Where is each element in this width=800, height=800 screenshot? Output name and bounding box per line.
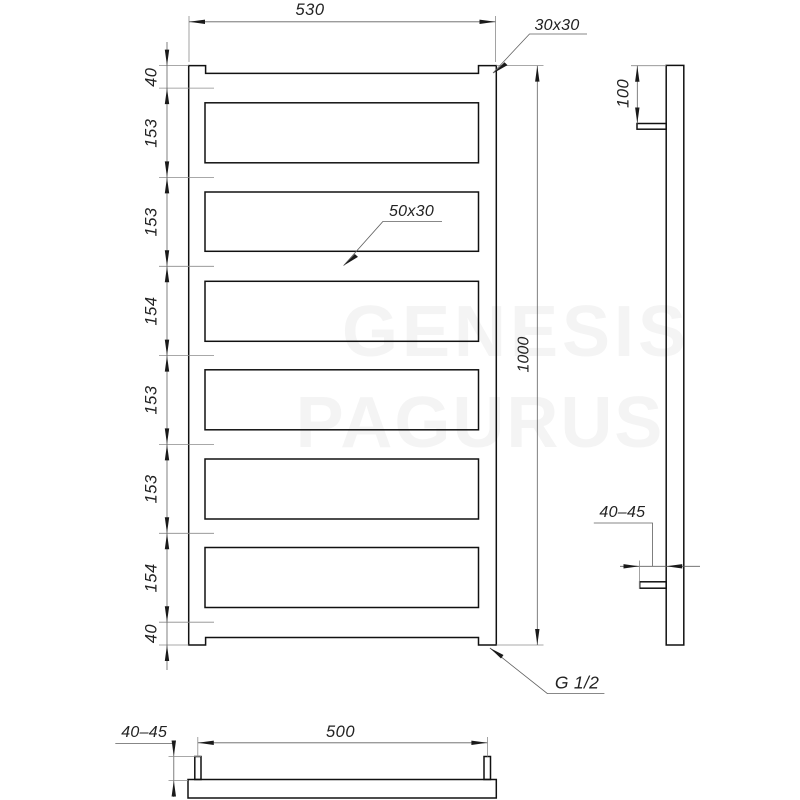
- svg-text:530: 530: [295, 1, 324, 19]
- svg-text:40: 40: [143, 624, 161, 644]
- svg-text:153: 153: [143, 385, 161, 414]
- svg-text:153: 153: [143, 474, 161, 503]
- svg-text:153: 153: [143, 118, 161, 147]
- svg-text:50x30: 50x30: [389, 203, 434, 220]
- svg-text:G 1/2: G 1/2: [555, 673, 599, 693]
- svg-text:40–45: 40–45: [121, 724, 167, 741]
- svg-text:40: 40: [143, 67, 161, 87]
- svg-text:100: 100: [615, 78, 633, 107]
- svg-text:154: 154: [143, 296, 161, 325]
- svg-text:PAGURUS: PAGURUS: [296, 383, 665, 463]
- svg-text:500: 500: [326, 723, 355, 741]
- svg-text:30x30: 30x30: [534, 17, 579, 34]
- svg-text:154: 154: [143, 563, 161, 592]
- svg-text:1000: 1000: [516, 337, 533, 373]
- svg-text:40–45: 40–45: [599, 504, 645, 521]
- svg-text:153: 153: [143, 207, 161, 236]
